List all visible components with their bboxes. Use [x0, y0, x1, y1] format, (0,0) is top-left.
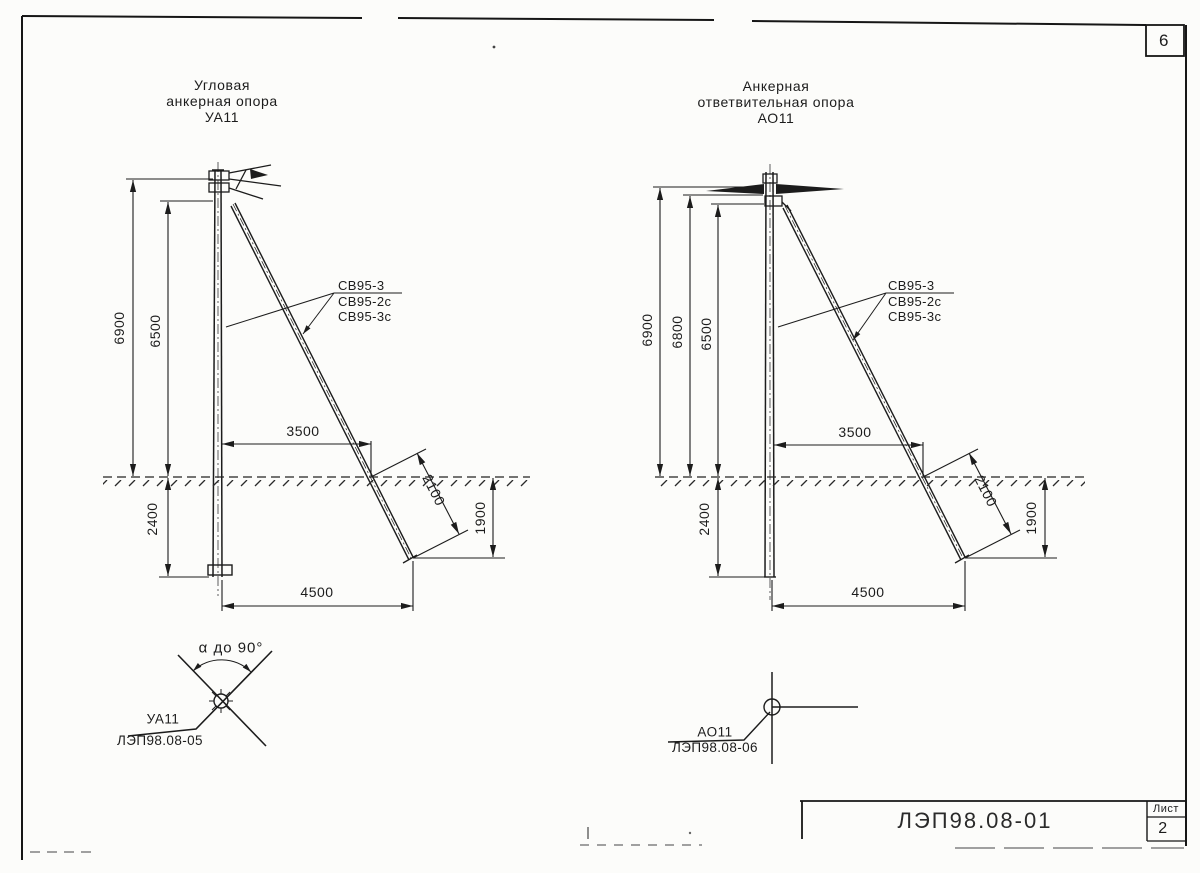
ao11-dim-4500: 4500: [851, 584, 884, 600]
ao11-plan-name: АО11: [697, 725, 732, 740]
ua11-dim-6500: 6500: [147, 314, 163, 347]
ao11-top-hardware: [706, 174, 844, 211]
ao11-dim-6900: 6900: [639, 313, 655, 346]
ua11-title-line2: анкерная опора: [166, 93, 278, 109]
ua11-plan-ref: ЛЭП98.08-05: [117, 733, 203, 748]
corner-sheet-number: 6: [1159, 31, 1169, 51]
ua11-ground-line: [103, 477, 530, 487]
ua11-dimensions: [126, 179, 505, 611]
ao11-strut-label-2: СВ95-2с: [888, 295, 941, 308]
ao11-title-line1: Анкерная: [743, 78, 810, 94]
ao11-dim-2400: 2400: [696, 502, 712, 535]
ao11-dim-6500: 6500: [698, 317, 714, 350]
ao11-strut: [783, 205, 969, 563]
ua11-title-line3: УА11: [205, 109, 239, 125]
ua11-dim-6900: 6900: [111, 311, 127, 344]
ua11-plan-name: УА11: [147, 712, 180, 727]
ao11-pole: [764, 164, 776, 600]
ao11-strut-label-1: СВ95-3: [888, 279, 934, 292]
ua11-dim-3500: 3500: [286, 423, 319, 439]
ua11-title-line1: Угловая: [194, 77, 250, 93]
ua11-strut-label-3: СВ95-3с: [338, 310, 391, 323]
title-block-sheet-label: Лист: [1153, 803, 1179, 815]
ua11-pole: [208, 162, 232, 596]
ua11-plan-angle-note: α до 90°: [199, 640, 264, 657]
ao11-title-line3: АО11: [758, 110, 795, 126]
ua11-dim-4500: 4500: [300, 584, 333, 600]
ua11-strut: [231, 203, 417, 563]
ua11-plan-symbol: [128, 651, 272, 746]
ua11-dim-1900: 1900: [472, 501, 488, 534]
ua11-strut-label-2: СВ95-2с: [338, 295, 391, 308]
ao11-strut-label-3: СВ95-3с: [888, 310, 941, 323]
ua11-strut-label-1: СВ95-3: [338, 279, 384, 292]
ao11-dimensions: [653, 187, 1057, 611]
ao11-ground-line: [655, 477, 1085, 487]
ao11-title-line2: ответвительная опора: [698, 94, 855, 110]
ao11-drawing: [653, 164, 1085, 764]
ua11-drawing: [103, 162, 530, 746]
ao11-dim-3500: 3500: [838, 424, 871, 440]
ao11-dim-1900: 1900: [1023, 501, 1039, 534]
drawing-sheet: 6 ЛЭП98.08-01 Лист 2 Угловая анкерная оп…: [0, 0, 1200, 873]
ao11-dim-6800: 6800: [669, 315, 685, 348]
title-block-document-number: ЛЭП98.08-01: [898, 808, 1053, 834]
ua11-dim-2400: 2400: [144, 502, 160, 535]
ao11-plan-ref: ЛЭП98.08-06: [672, 740, 758, 755]
title-block-sheet-number: 2: [1158, 820, 1167, 838]
frame-bottom-dashes: [30, 46, 1184, 852]
